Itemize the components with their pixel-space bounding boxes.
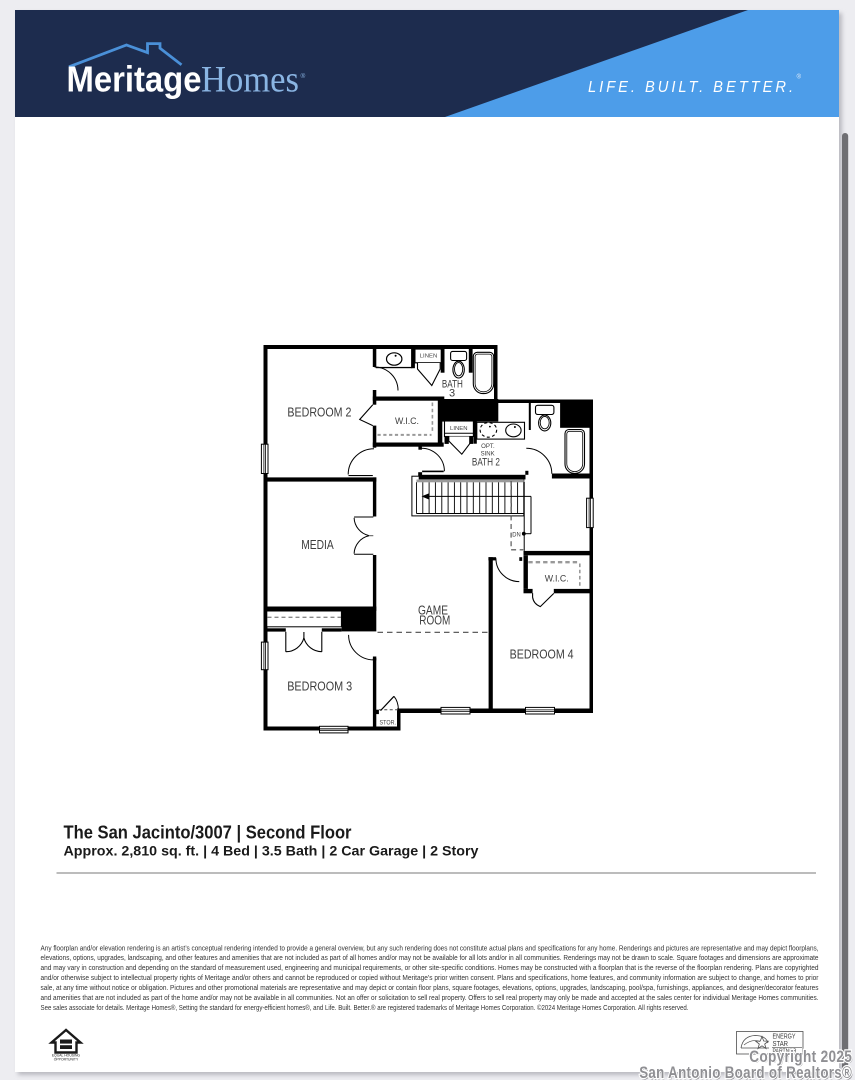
svg-text:3: 3 (449, 388, 455, 400)
svg-text:See sales associate for detail: See sales associate for details. Meritag… (41, 1003, 689, 1012)
svg-text:and/or otherwise subject to in: and/or otherwise subject to intellectual… (41, 973, 819, 982)
svg-text:BEDROOM 4: BEDROOM 4 (510, 647, 574, 661)
svg-text:W.I.C.: W.I.C. (395, 416, 419, 426)
svg-text:ENERGY: ENERGY (773, 1033, 796, 1040)
svg-text:OPPORTUNITY: OPPORTUNITY (54, 1057, 79, 1061)
svg-text:Any floorplan and/or elevation: Any floorplan and/or elevation rendering… (41, 943, 819, 952)
svg-text:BEDROOM 2: BEDROOM 2 (287, 405, 351, 419)
svg-text:BATH 2: BATH 2 (472, 457, 500, 469)
svg-text:and may vary in construction a: and may vary in construction and dependi… (41, 963, 819, 972)
svg-text:LINEN: LINEN (450, 426, 468, 432)
svg-text:MEDIA: MEDIA (301, 538, 334, 552)
svg-text:The San Jacinto/3007 | Second: The San Jacinto/3007 | Second Floor (64, 823, 352, 843)
svg-text:ROOM: ROOM (419, 614, 450, 628)
svg-text:Homes: Homes (201, 60, 299, 101)
svg-text:®: ® (301, 72, 306, 80)
svg-text:elevations, options, upgrades,: elevations, options, upgrades, landscapi… (41, 953, 819, 962)
svg-text:and amenities that are not inc: and amenities that are not included as p… (41, 993, 819, 1002)
svg-text:STAR: STAR (773, 1041, 789, 1048)
svg-text:STOR.: STOR. (380, 720, 397, 727)
svg-text:DN: DN (512, 531, 521, 538)
svg-text:Meritage: Meritage (67, 59, 202, 100)
svg-text:BEDROOM 3: BEDROOM 3 (287, 679, 352, 693)
svg-text:LINEN: LINEN (420, 354, 438, 360)
svg-text:®: ® (797, 74, 802, 81)
svg-text:LIFE. BUILT. BETTER.: LIFE. BUILT. BETTER. (588, 79, 796, 96)
svg-text:Approx. 2,810 sq. ft. | 4 Bed: Approx. 2,810 sq. ft. | 4 Bed | 3.5 Bath… (64, 843, 479, 859)
svg-text:sale, at any time without noti: sale, at any time without notice or obli… (41, 983, 819, 992)
svg-text:San Antonio Board of Realtors®: San Antonio Board of Realtors® (639, 1064, 852, 1080)
svg-text:OPT.: OPT. (481, 443, 495, 450)
svg-text:W.I.C.: W.I.C. (545, 574, 569, 584)
